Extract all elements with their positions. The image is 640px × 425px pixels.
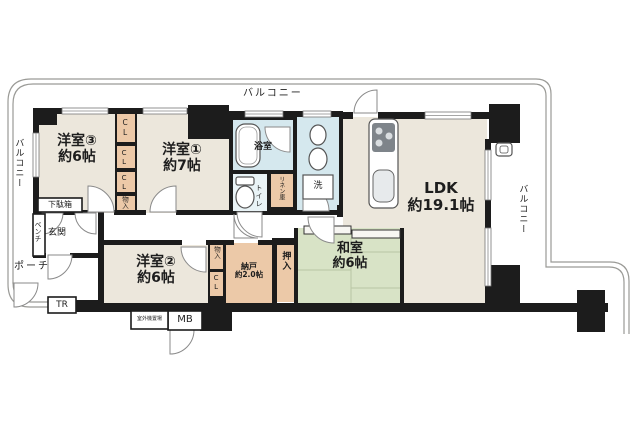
ldk-size: 約19.1帖	[398, 197, 484, 214]
sliding-door-panel	[352, 230, 400, 238]
door-porch-gate	[14, 283, 38, 307]
bench-label: ベンチ	[34, 221, 42, 242]
window-ldk-top	[425, 112, 471, 119]
west1-label: 洋室① 約7帖	[139, 142, 225, 174]
floorplan-drawing	[0, 0, 640, 425]
window-west1-top	[143, 108, 187, 114]
toilet-bowl-icon	[236, 186, 254, 208]
door-getabako-right	[75, 213, 96, 234]
japanese-room-name: 和室	[298, 242, 402, 257]
monoire1-label: 物入	[120, 196, 127, 209]
washbasin-icon	[310, 125, 326, 145]
west3-name: 洋室③	[39, 133, 115, 149]
wall-hall-top-b	[114, 210, 146, 215]
wall-hall-bottom-b	[206, 240, 234, 245]
west2-name: 洋室②	[104, 254, 208, 270]
toilet-tank-icon	[236, 177, 254, 185]
cl4-label: CL	[212, 274, 220, 292]
door-mb	[170, 330, 194, 354]
porch-label: ポーチ	[14, 261, 50, 273]
washbasin-icon	[309, 148, 327, 170]
getabako-label: 下駄箱	[38, 200, 82, 209]
cl2-label: CL	[120, 149, 128, 167]
window-washroom-top	[303, 111, 331, 117]
balcony-top-label: バルコニー	[243, 88, 303, 100]
door-kitchen-balcony	[354, 90, 377, 113]
mb-label: MB	[168, 314, 202, 326]
bath-label: 浴室	[233, 142, 293, 152]
stove-burner	[376, 140, 383, 147]
pillar-top-right	[489, 104, 520, 143]
outdoor-unit-label: 室外機置場	[131, 317, 168, 323]
pillar-west1	[188, 105, 229, 139]
west1-size: 約7帖	[139, 158, 225, 174]
stove-burner	[376, 128, 383, 135]
monoire2-label: 物入	[212, 246, 219, 259]
balcony-right-label: バルコニー	[517, 184, 527, 234]
west3-label: 洋室③ 約6帖	[39, 133, 115, 165]
floorplan: バルコニー バルコニー バルコニー 洋室③ 約6帖 洋室① 約7帖 洋室② 約6…	[0, 0, 640, 425]
nando-size: 約2.0帖	[226, 271, 272, 280]
kitchen-sink-icon	[373, 170, 394, 202]
hose-bib-icon	[496, 143, 512, 156]
pillar-bottom-right	[577, 290, 605, 332]
oshiire-label: 押入	[280, 251, 290, 271]
japanese-room-label: 和室 約6帖	[298, 242, 402, 272]
pillar-step	[491, 265, 520, 307]
japanese-room-size: 約6帖	[298, 257, 402, 272]
west3-size: 約6帖	[39, 149, 115, 165]
west2-label: 洋室② 約6帖	[104, 254, 208, 286]
window-ldk-right-1	[485, 150, 491, 200]
stove-burner	[386, 133, 393, 140]
tr-label: TR	[48, 300, 76, 310]
ldk-label: LDK 約19.1帖	[398, 180, 484, 215]
cl1-label: CL	[120, 118, 129, 138]
wall-kitchen-top-a	[343, 112, 353, 119]
cl3-label: CL	[120, 174, 128, 192]
genkan-label: 玄関	[48, 228, 66, 238]
window-bath-top	[245, 111, 283, 117]
west2-size: 約6帖	[104, 270, 208, 286]
nando-label: 納戸 約2.0帖	[226, 262, 272, 280]
wall-hall-top-c	[176, 210, 229, 215]
wall-genkan-bottom-b	[70, 253, 98, 258]
window-west3-top	[62, 108, 108, 114]
wall-mb-block	[200, 303, 232, 331]
ldk-name: LDK	[398, 180, 484, 197]
west1-name: 洋室①	[139, 142, 225, 158]
balcony-left-label: バルコニー	[13, 138, 23, 188]
door-entrance	[48, 255, 72, 279]
linen-label: リネン庫	[277, 176, 284, 200]
wall-nando-right	[272, 240, 277, 308]
wall-hall-ldk	[337, 205, 343, 217]
wall-oshiire-top	[272, 238, 298, 243]
laundry-label: 洗	[303, 181, 333, 191]
toilet-label: トイレ	[255, 184, 263, 208]
window-ldk-right-2	[485, 228, 491, 286]
wall-hall-bottom-a	[98, 240, 182, 245]
wall-tr-back	[76, 300, 98, 312]
